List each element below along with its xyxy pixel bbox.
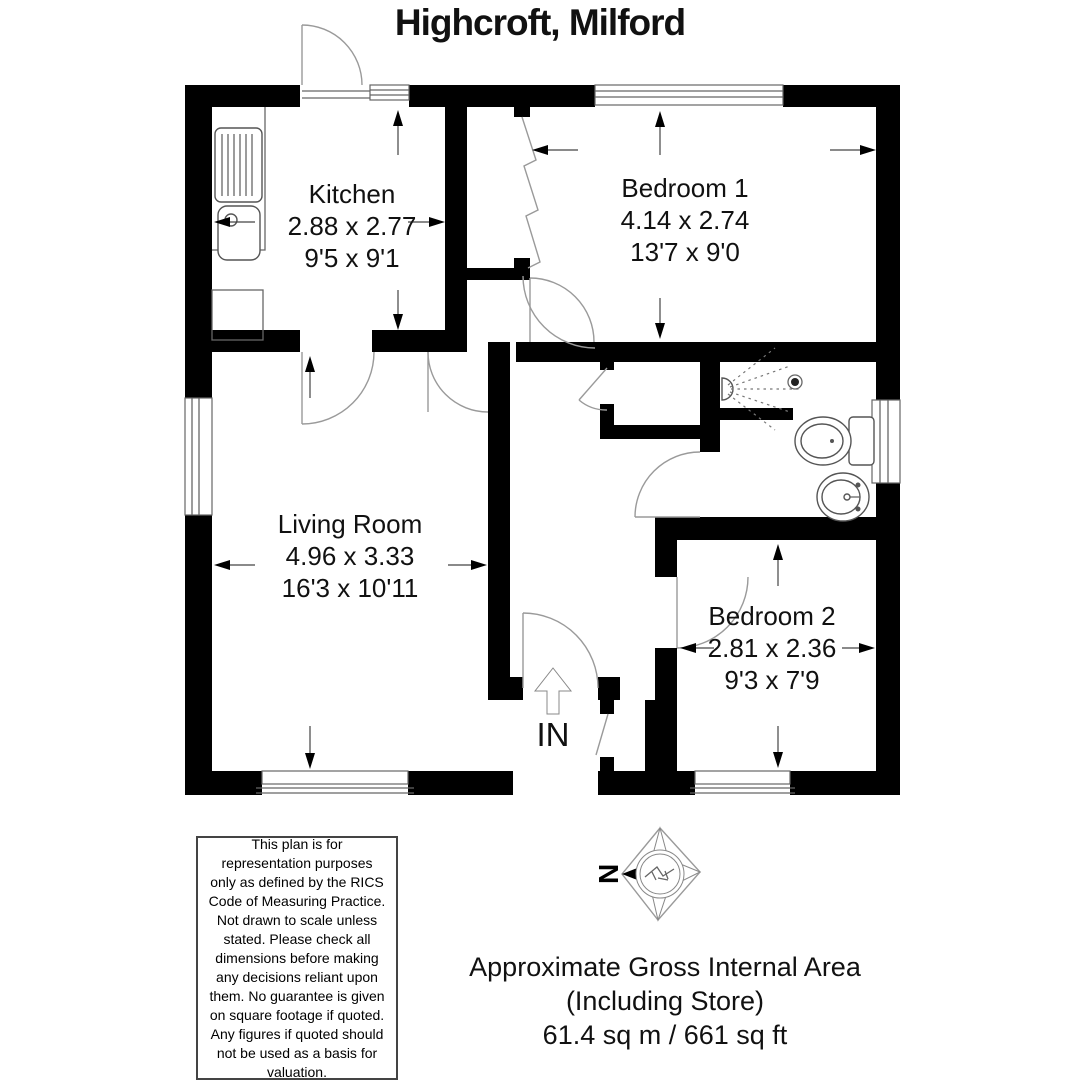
living-room-name: Living Room [250,508,450,540]
bedroom2-label: Bedroom 2 2.81 x 2.36 9'3 x 7'9 [672,600,872,696]
toilet-icon [795,417,874,465]
area-line2: (Including Store) [415,984,915,1018]
kitchen-metric: 2.88 x 2.77 [252,210,452,242]
area-line3: 61.4 sq m / 661 sq ft [415,1018,915,1052]
bedroom2-imperial: 9'3 x 7'9 [672,664,872,696]
gross-internal-area: Approximate Gross Internal Area (Includi… [415,950,915,1052]
kitchen-name: Kitchen [252,178,452,210]
bedroom1-metric: 4.14 x 2.74 [585,204,785,236]
plan-title: Highcroft, Milford [0,2,1080,44]
living-room-label: Living Room 4.96 x 3.33 16'3 x 10'11 [250,508,450,604]
living-room-imperial: 16'3 x 10'11 [250,572,450,604]
bedroom2-name: Bedroom 2 [672,600,872,632]
area-line1: Approximate Gross Internal Area [415,950,915,984]
compass-rose-icon: N [593,828,700,920]
disclaimer-text: This plan is for representation purposes… [198,835,396,1082]
kitchen-imperial: 9'5 x 9'1 [252,242,452,274]
compass-north-label: N [593,864,624,884]
bedroom1-imperial: 13'7 x 9'0 [585,236,785,268]
bedroom1-label: Bedroom 1 4.14 x 2.74 13'7 x 9'0 [585,172,785,268]
basin-icon [817,473,869,521]
wardrobe-doors [522,117,540,268]
entrance-label: IN [513,718,593,751]
hall-door-arc [523,276,595,348]
floorplan-svg: N [0,0,1080,1080]
living-room-metric: 4.96 x 3.33 [250,540,450,572]
kitchen-label: Kitchen 2.88 x 2.77 9'5 x 9'1 [252,178,452,274]
entrance-arrow-icon [535,668,571,714]
bedroom2-metric: 2.81 x 2.36 [672,632,872,664]
disclaimer-box: This plan is for representation purposes… [196,836,398,1080]
bedroom1-name: Bedroom 1 [585,172,785,204]
